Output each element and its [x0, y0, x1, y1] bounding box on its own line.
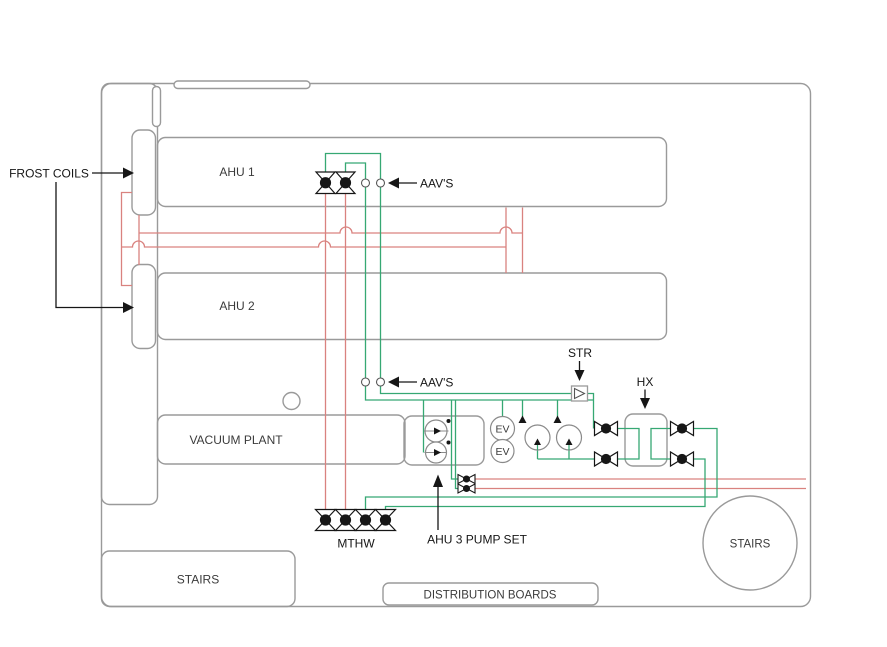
ahu1-label: AHU 1 — [219, 165, 255, 179]
stairs-right-label: STAIRS — [730, 539, 771, 551]
pipe-green-trans-1 — [452, 400, 459, 479]
walls-layer — [102, 81, 811, 607]
pipe-green-header-b — [346, 163, 594, 400]
mthw-valves — [316, 510, 396, 531]
frost-coils-leader-2 — [56, 182, 123, 308]
ahu3-pump-set-label: AHU 3 PUMP SET — [427, 533, 527, 547]
aavs-upper-arrow — [388, 178, 399, 189]
plant-room-schematic: EV EV — [0, 0, 887, 647]
vacuum-plant-label: VACUUM PLANT — [189, 433, 283, 447]
pump-1-discharge-arrow — [519, 416, 527, 424]
ev1-label: EV — [495, 424, 509, 436]
frost-coil-2 — [132, 265, 156, 349]
ahu3-arrow — [433, 475, 443, 488]
pipe-red-main-upper — [139, 227, 523, 233]
mthw-label: MTHW — [337, 537, 375, 551]
hx-arrow — [640, 398, 650, 409]
floor-gully-circle — [283, 393, 300, 410]
aavs-lower-label: AAV'S — [420, 376, 453, 390]
hx-label: HX — [637, 375, 654, 389]
aav-4 — [377, 378, 385, 386]
aav-2 — [377, 179, 385, 187]
aav-3 — [362, 378, 370, 386]
hx-valves — [595, 422, 694, 467]
str-label: STR — [568, 346, 592, 360]
strainer-symbol — [572, 386, 588, 401]
aav-1 — [362, 179, 370, 187]
corridor-door — [153, 87, 161, 127]
distribution-boards-label: DISTRIBUTION BOARDS — [424, 590, 557, 602]
ev2-label: EV — [495, 446, 509, 458]
top-wall-opening — [174, 81, 310, 89]
aavs-upper-label: AAV'S — [420, 177, 453, 191]
heat-exchanger-box — [625, 414, 667, 466]
stairs-left-label: STAIRS — [177, 573, 219, 587]
annotation-lines — [56, 173, 645, 530]
str-arrow — [575, 370, 585, 381]
pipe-green-hx-left — [618, 429, 640, 460]
pump-2-discharge-arrow — [554, 416, 562, 424]
pipe-green-str-out — [588, 394, 594, 429]
aavs-lower-arrow — [388, 377, 399, 388]
pipe-red-main-lower — [122, 241, 507, 247]
ahu1-valves — [316, 172, 355, 194]
schematic-canvas: EV EV — [0, 0, 887, 647]
transition-valves — [458, 475, 475, 494]
frost-coils-label: FROST COILS — [9, 167, 89, 181]
ahu3-pumps — [519, 416, 582, 451]
frost-coil-1 — [132, 130, 156, 215]
small-pump-pair — [424, 419, 451, 463]
building-outline — [102, 84, 811, 607]
red-pipework-layer — [122, 193, 807, 510]
ahu2-label: AHU 2 — [219, 299, 255, 313]
pipe-red-coil-riser — [122, 193, 133, 286]
